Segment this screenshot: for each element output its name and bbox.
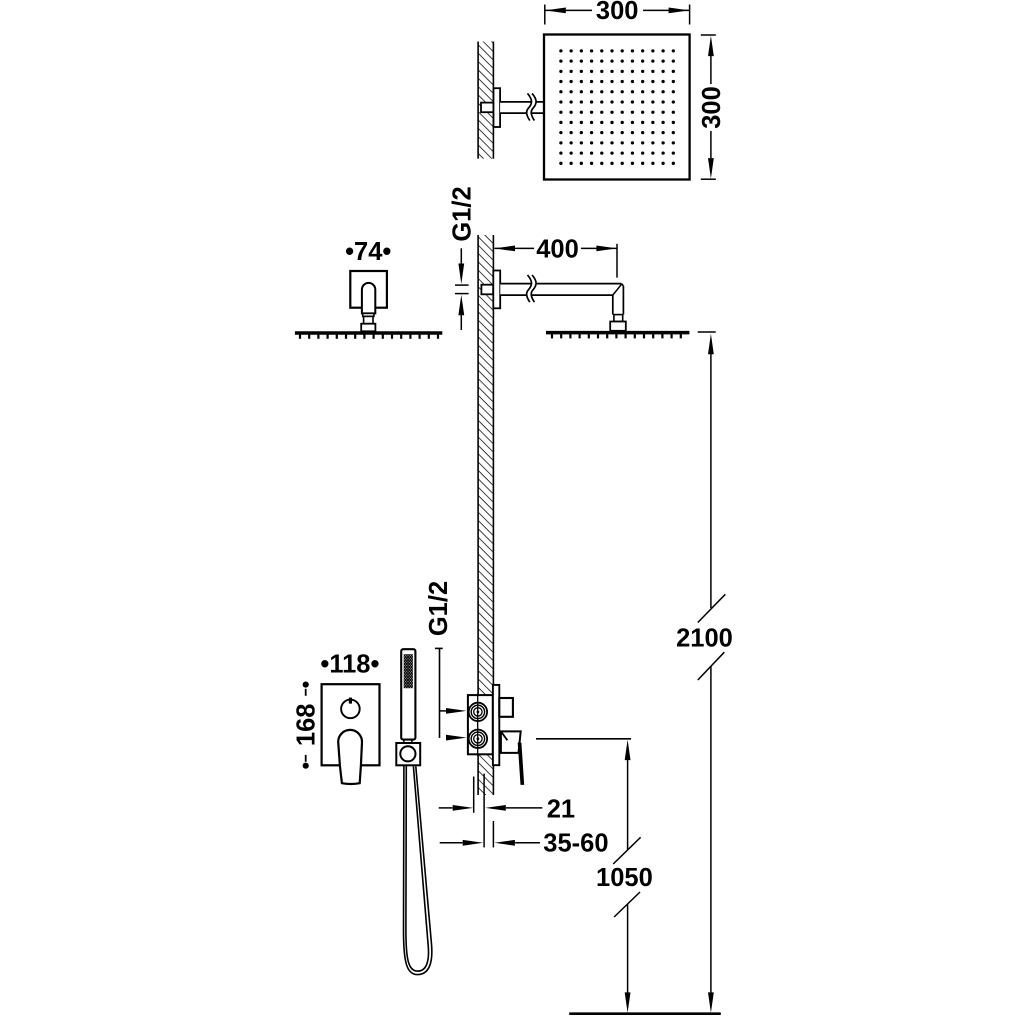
svg-text:G1/2: G1/2 bbox=[449, 186, 477, 241]
svg-text:168: 168 bbox=[292, 704, 320, 747]
svg-text:1050: 1050 bbox=[596, 864, 653, 892]
svg-text:G1/2: G1/2 bbox=[425, 581, 453, 636]
svg-text:21: 21 bbox=[547, 795, 575, 823]
svg-text:2100: 2100 bbox=[676, 625, 733, 653]
svg-text:300: 300 bbox=[698, 86, 726, 129]
svg-text:300: 300 bbox=[596, 0, 639, 25]
svg-text:400: 400 bbox=[536, 235, 579, 263]
svg-text:35-60: 35-60 bbox=[543, 830, 608, 858]
svg-text:•74•: •74• bbox=[345, 238, 391, 266]
svg-text:•118•: •118• bbox=[320, 651, 379, 679]
